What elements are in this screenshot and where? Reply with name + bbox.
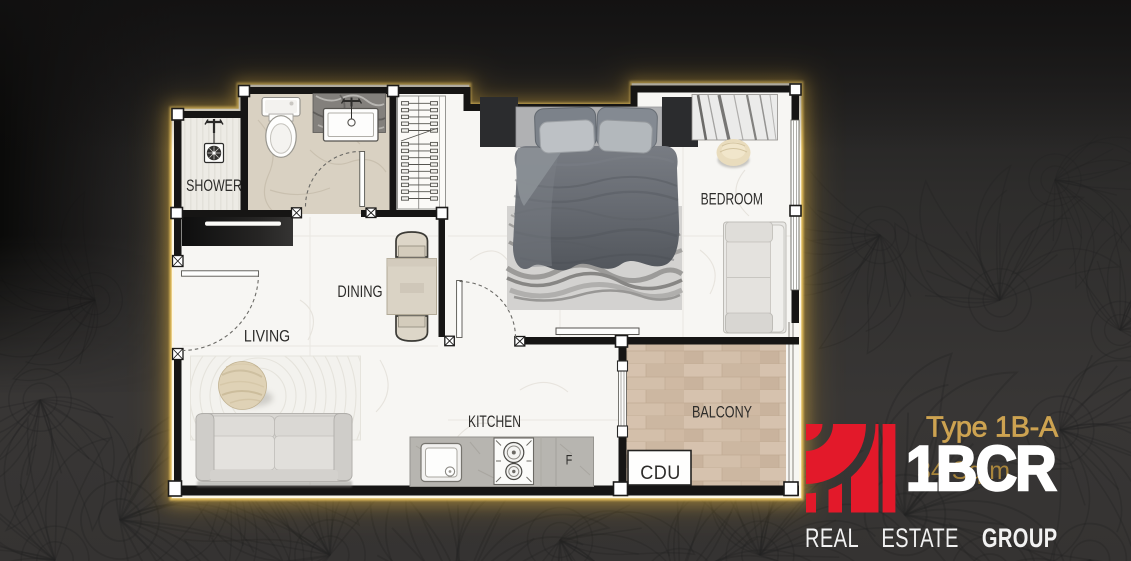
svg-text:F: F — [566, 452, 573, 468]
svg-text:KITCHEN: KITCHEN — [468, 413, 521, 431]
svg-text:BALCONY: BALCONY — [692, 403, 752, 422]
svg-text:DINING: DINING — [337, 282, 382, 301]
svg-text:REAL ESTATE GROUP: REAL ESTATE GROUP — [805, 523, 1058, 554]
svg-text:LIVING: LIVING — [244, 327, 290, 345]
svg-text:BEDROOM: BEDROOM — [701, 191, 763, 209]
svg-text:1BCR: 1BCR — [906, 432, 1056, 503]
svg-text:CDU: CDU — [640, 462, 680, 484]
svg-text:SHOWER: SHOWER — [186, 177, 242, 195]
